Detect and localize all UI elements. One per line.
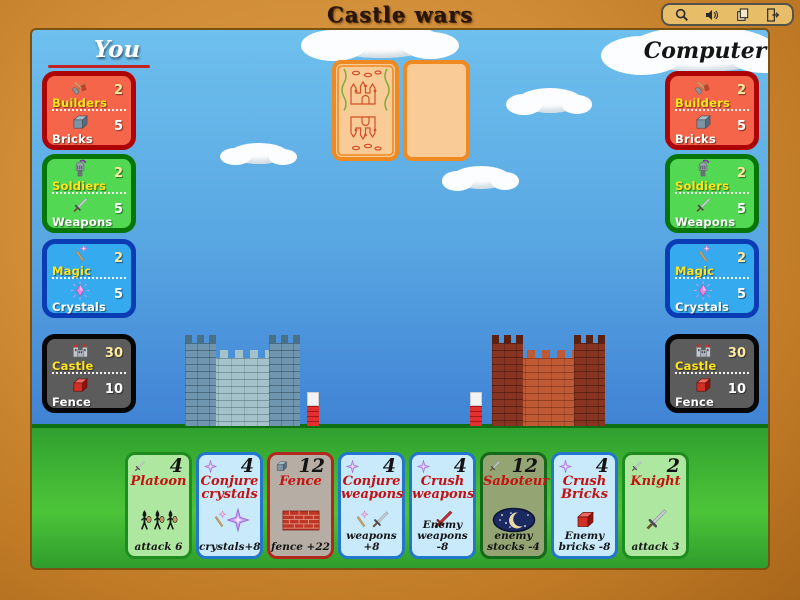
red-brick-icon [69, 375, 91, 396]
card-effect: attack 3 [625, 542, 686, 553]
sword-icon [629, 459, 644, 474]
hand-card-conjure-crystals[interactable]: 4 Conjure crystals crystals+8 [196, 452, 263, 559]
hand-card-saboteur[interactable]: 12 Saboteur enemy stocks -4 [480, 452, 547, 559]
player-label-computer: Computer [638, 38, 770, 64]
castle-tower-crenellation [492, 335, 523, 343]
sparkle-icon [345, 459, 360, 474]
crystal-icon [692, 280, 714, 301]
card-effect: fence +22 [270, 542, 331, 553]
exit-door-icon [765, 7, 781, 23]
magnifier-icon [674, 7, 690, 23]
wand-icon [692, 244, 714, 265]
card-title: Platoon [128, 475, 189, 488]
card-slot-empty [403, 60, 470, 161]
computer-castle [492, 335, 605, 426]
game-board: You Computer Builders2 Bricks5 Soldiers2… [30, 28, 770, 570]
wand-icon [69, 244, 91, 265]
card-title: Saboteur [483, 475, 544, 488]
castle-icon [69, 339, 91, 360]
cloud [452, 166, 510, 189]
fence-post-top [307, 392, 319, 406]
hand-card-knight[interactable]: 2 Knight attack 3 [622, 452, 689, 559]
castle-tower-crenellation [574, 335, 605, 343]
hand-card-conjure-weapons[interactable]: 4 Conjure weapons weapons +8 [338, 452, 405, 559]
castle-tower [574, 343, 605, 426]
speaker-icon [704, 7, 720, 23]
you-panel-magic-crystals: Magic2 Crystals5 [42, 239, 136, 318]
tools-icon [69, 76, 91, 97]
card-title: Crush Bricks [554, 475, 615, 501]
brick-icon [69, 112, 91, 133]
card-effect: weapons +8 [341, 531, 402, 553]
computer-panel-magic-crystals: Magic2 Crystals5 [665, 239, 759, 318]
computer-fence [470, 392, 482, 426]
card-back-pattern [336, 64, 395, 157]
sparkle-icon [558, 459, 573, 474]
copy-button[interactable] [733, 5, 752, 24]
player-fence [307, 392, 319, 426]
brick-icon [692, 112, 714, 133]
crystal-icon [69, 280, 91, 301]
card-effect: crystals+8 [199, 542, 260, 553]
player-label-you: You [62, 36, 172, 63]
brick-icon [274, 459, 289, 474]
fence-post-bricks [307, 406, 319, 426]
card-effect: Enemy bricks -8 [554, 531, 615, 553]
you-panel-soldiers-weapons: Soldiers2 Weapons5 [42, 154, 136, 233]
castle-tower [269, 343, 300, 426]
toolbar [661, 3, 794, 26]
sword-art [625, 502, 686, 538]
pages-icon [735, 7, 751, 23]
card-effect: enemy stocks -4 [483, 531, 544, 553]
card-title: Conjure crystals [199, 475, 260, 501]
card-effect: Enemy weapons -8 [412, 520, 473, 553]
quit-button[interactable] [763, 5, 782, 24]
cloud [518, 88, 582, 113]
card-title: Knight [625, 475, 686, 488]
deck-card-back[interactable] [332, 60, 399, 161]
you-underline [48, 65, 150, 68]
fence-post-top [470, 392, 482, 406]
card-title: Fence [270, 475, 331, 488]
you-panel-castle-fence: Castle30 Fence10 [42, 334, 136, 413]
soldier-icon [69, 159, 91, 180]
sound-button[interactable] [703, 5, 722, 24]
sword-icon [487, 459, 502, 474]
fence-post-bricks [470, 406, 482, 426]
hand-card-crush-bricks[interactable]: 4 Crush Bricks Enemy bricks -8 [551, 452, 618, 559]
sparkle-icon [203, 459, 218, 474]
game-frame: { "window": { "title": "Castle wars", "t… [0, 0, 800, 600]
card-effect: attack 6 [128, 542, 189, 553]
red-brick-icon [692, 375, 714, 396]
player-castle [185, 335, 300, 426]
castle-tower [185, 343, 216, 426]
sword-icon [132, 459, 147, 474]
castle-tower [492, 343, 523, 426]
sparkle-icon [416, 459, 431, 474]
you-panel-builders-bricks: Builders2 Bricks5 [42, 71, 136, 150]
castle-tower-crenellation [269, 335, 300, 343]
computer-panel-castle-fence: Castle30 Fence10 [665, 334, 759, 413]
computer-panel-soldiers-weapons: Soldiers2 Weapons5 [665, 154, 759, 233]
brick-wall-art [270, 502, 331, 538]
castle-icon [692, 339, 714, 360]
card-title: Conjure weapons [341, 475, 402, 501]
card-title: Crush weapons [412, 475, 473, 501]
cloud [230, 143, 288, 164]
hand-card-fence[interactable]: 12 Fence fence +22 [267, 452, 334, 559]
zoom-button[interactable] [673, 5, 692, 24]
computer-panel-builders-bricks: Builders2 Bricks5 [665, 71, 759, 150]
hand-card-crush-weapons[interactable]: 4 Crush weapons Enemy weapons -8 [409, 452, 476, 559]
cloud [322, 28, 440, 58]
sword-icon [69, 195, 91, 216]
sword-icon [692, 195, 714, 216]
soldier-icon [692, 159, 714, 180]
tools-icon [692, 76, 714, 97]
platoon-soldiers-art [128, 502, 189, 538]
castle-tower-crenellation [185, 335, 216, 343]
wand-crystal-art [199, 502, 260, 538]
hand-card-platoon[interactable]: 4 Platoon attack 6 [125, 452, 192, 559]
